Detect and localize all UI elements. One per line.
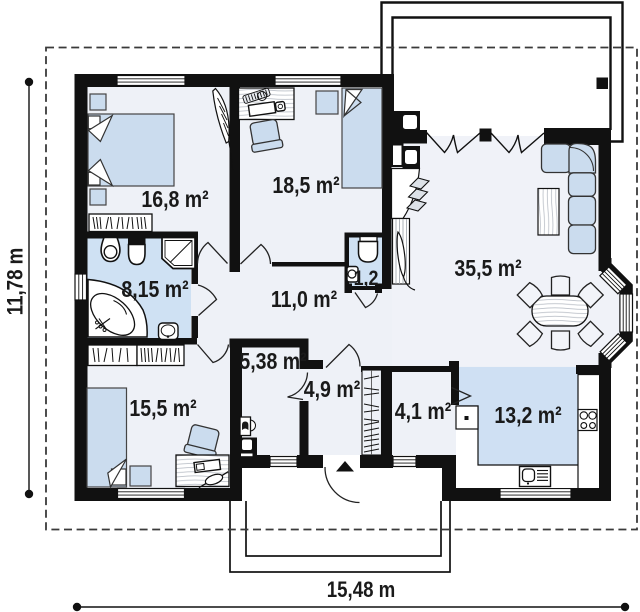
svg-text:11,78 m: 11,78 m [4, 248, 28, 316]
svg-text:1,2: 1,2 [354, 267, 379, 291]
svg-text:4,9 m²: 4,9 m² [304, 377, 360, 403]
svg-text:15,48 m: 15,48 m [327, 579, 396, 603]
svg-text:18,5 m²: 18,5 m² [272, 173, 339, 199]
svg-text:13,2 m²: 13,2 m² [494, 403, 561, 429]
svg-text:35,5 m²: 35,5 m² [454, 256, 521, 282]
svg-text:8,15 m²: 8,15 m² [121, 277, 188, 303]
svg-text:4,1 m²: 4,1 m² [395, 399, 451, 425]
svg-text:11,0 m²: 11,0 m² [271, 287, 337, 313]
svg-text:16,8 m²: 16,8 m² [141, 187, 208, 213]
svg-text:5,38 m²: 5,38 m² [239, 349, 306, 375]
svg-text:15,5 m²: 15,5 m² [129, 396, 196, 422]
